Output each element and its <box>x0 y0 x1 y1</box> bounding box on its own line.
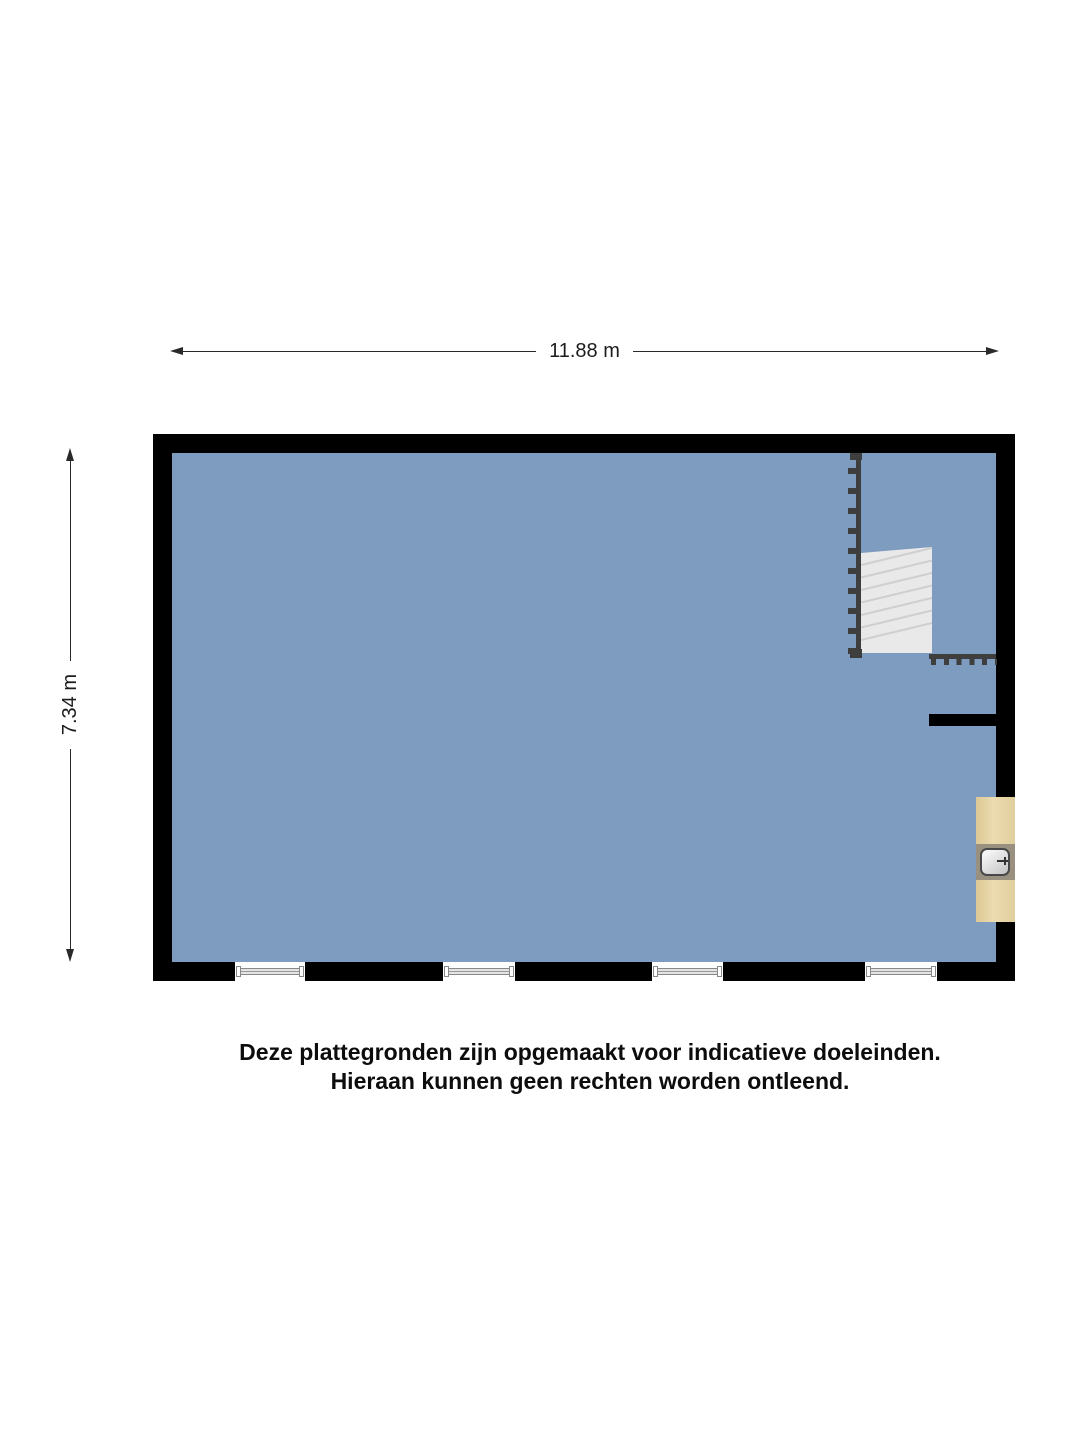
window-glazing <box>867 968 935 975</box>
window-frame-cap <box>717 966 722 977</box>
disclaimer-text: Deze plattegronden zijn opgemaakt voor i… <box>100 1038 1080 1096</box>
disclaimer-line-1: Deze plattegronden zijn opgemaakt voor i… <box>100 1038 1080 1067</box>
window-frame-cap <box>236 966 241 977</box>
window <box>235 962 305 981</box>
window-glazing <box>237 968 303 975</box>
interior-wall-stub <box>929 714 996 726</box>
disclaimer-line-2: Hieraan kunnen geen rechten worden ontle… <box>100 1067 1080 1096</box>
arrow-up-icon <box>66 448 74 461</box>
window <box>443 962 515 981</box>
arrow-down-icon <box>66 949 74 962</box>
window <box>865 962 937 981</box>
window-frame-cap <box>299 966 304 977</box>
stair-railing-ticks-vertical <box>848 468 856 654</box>
width-dimension-label: 11.88 m <box>536 340 633 363</box>
window-frame-cap <box>866 966 871 977</box>
sink-panel <box>976 844 1015 880</box>
faucet-icon <box>997 860 1008 862</box>
height-dimension-label: 7.34 m <box>59 661 82 748</box>
stair-railing-cap-top <box>850 453 862 460</box>
window-frame-cap <box>653 966 658 977</box>
window <box>652 962 723 981</box>
arrow-left-icon <box>170 347 183 355</box>
height-dimension: 7.34 m <box>62 448 78 962</box>
faucet-icon <box>1004 857 1006 865</box>
width-dimension: 11.88 m <box>170 343 999 359</box>
window-glazing <box>654 968 721 975</box>
staircase <box>861 547 932 653</box>
dimension-line <box>70 461 71 661</box>
dimension-line <box>633 351 986 352</box>
kitchen-counter <box>976 797 1015 922</box>
window-frame-cap <box>444 966 449 977</box>
window-frame-cap <box>509 966 514 977</box>
window-frame-cap <box>931 966 936 977</box>
arrow-right-icon <box>986 347 999 355</box>
dimension-line <box>70 749 71 949</box>
window-glazing <box>445 968 513 975</box>
stair-railing-ticks-horizontal <box>931 659 997 665</box>
stair-railing-vertical <box>856 453 861 657</box>
room-floor <box>172 453 996 962</box>
dimension-line <box>183 351 536 352</box>
floorplan-page: 11.88 m 7.34 m <box>0 0 1080 1440</box>
building-outline <box>153 434 1015 981</box>
